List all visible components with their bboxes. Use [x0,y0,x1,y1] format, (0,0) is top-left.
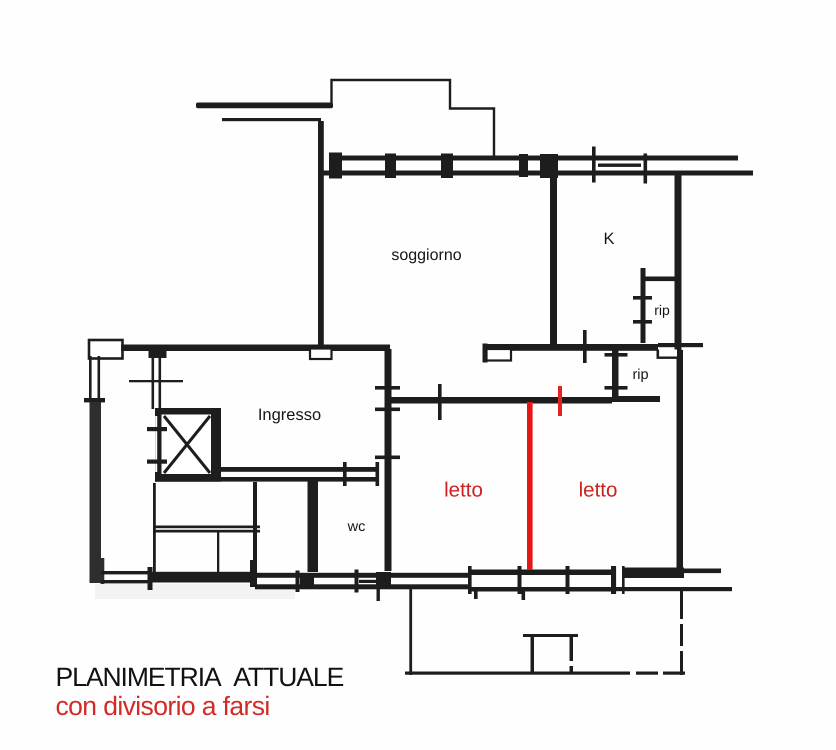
svg-text:rip: rip [654,302,670,318]
svg-text:wc: wc [347,519,366,535]
svg-text:letto: letto [444,479,483,502]
svg-text:soggiorno: soggiorno [391,247,461,264]
svg-text:PLANIMETRIA ATTUALE: PLANIMETRIA ATTUALE [56,662,344,692]
svg-text:Ingresso: Ingresso [258,406,321,424]
svg-text:K: K [603,230,614,248]
svg-text:con divisorio a farsi: con divisorio a farsi [56,691,270,721]
svg-text:rip: rip [632,367,648,383]
svg-text:letto: letto [579,479,618,502]
